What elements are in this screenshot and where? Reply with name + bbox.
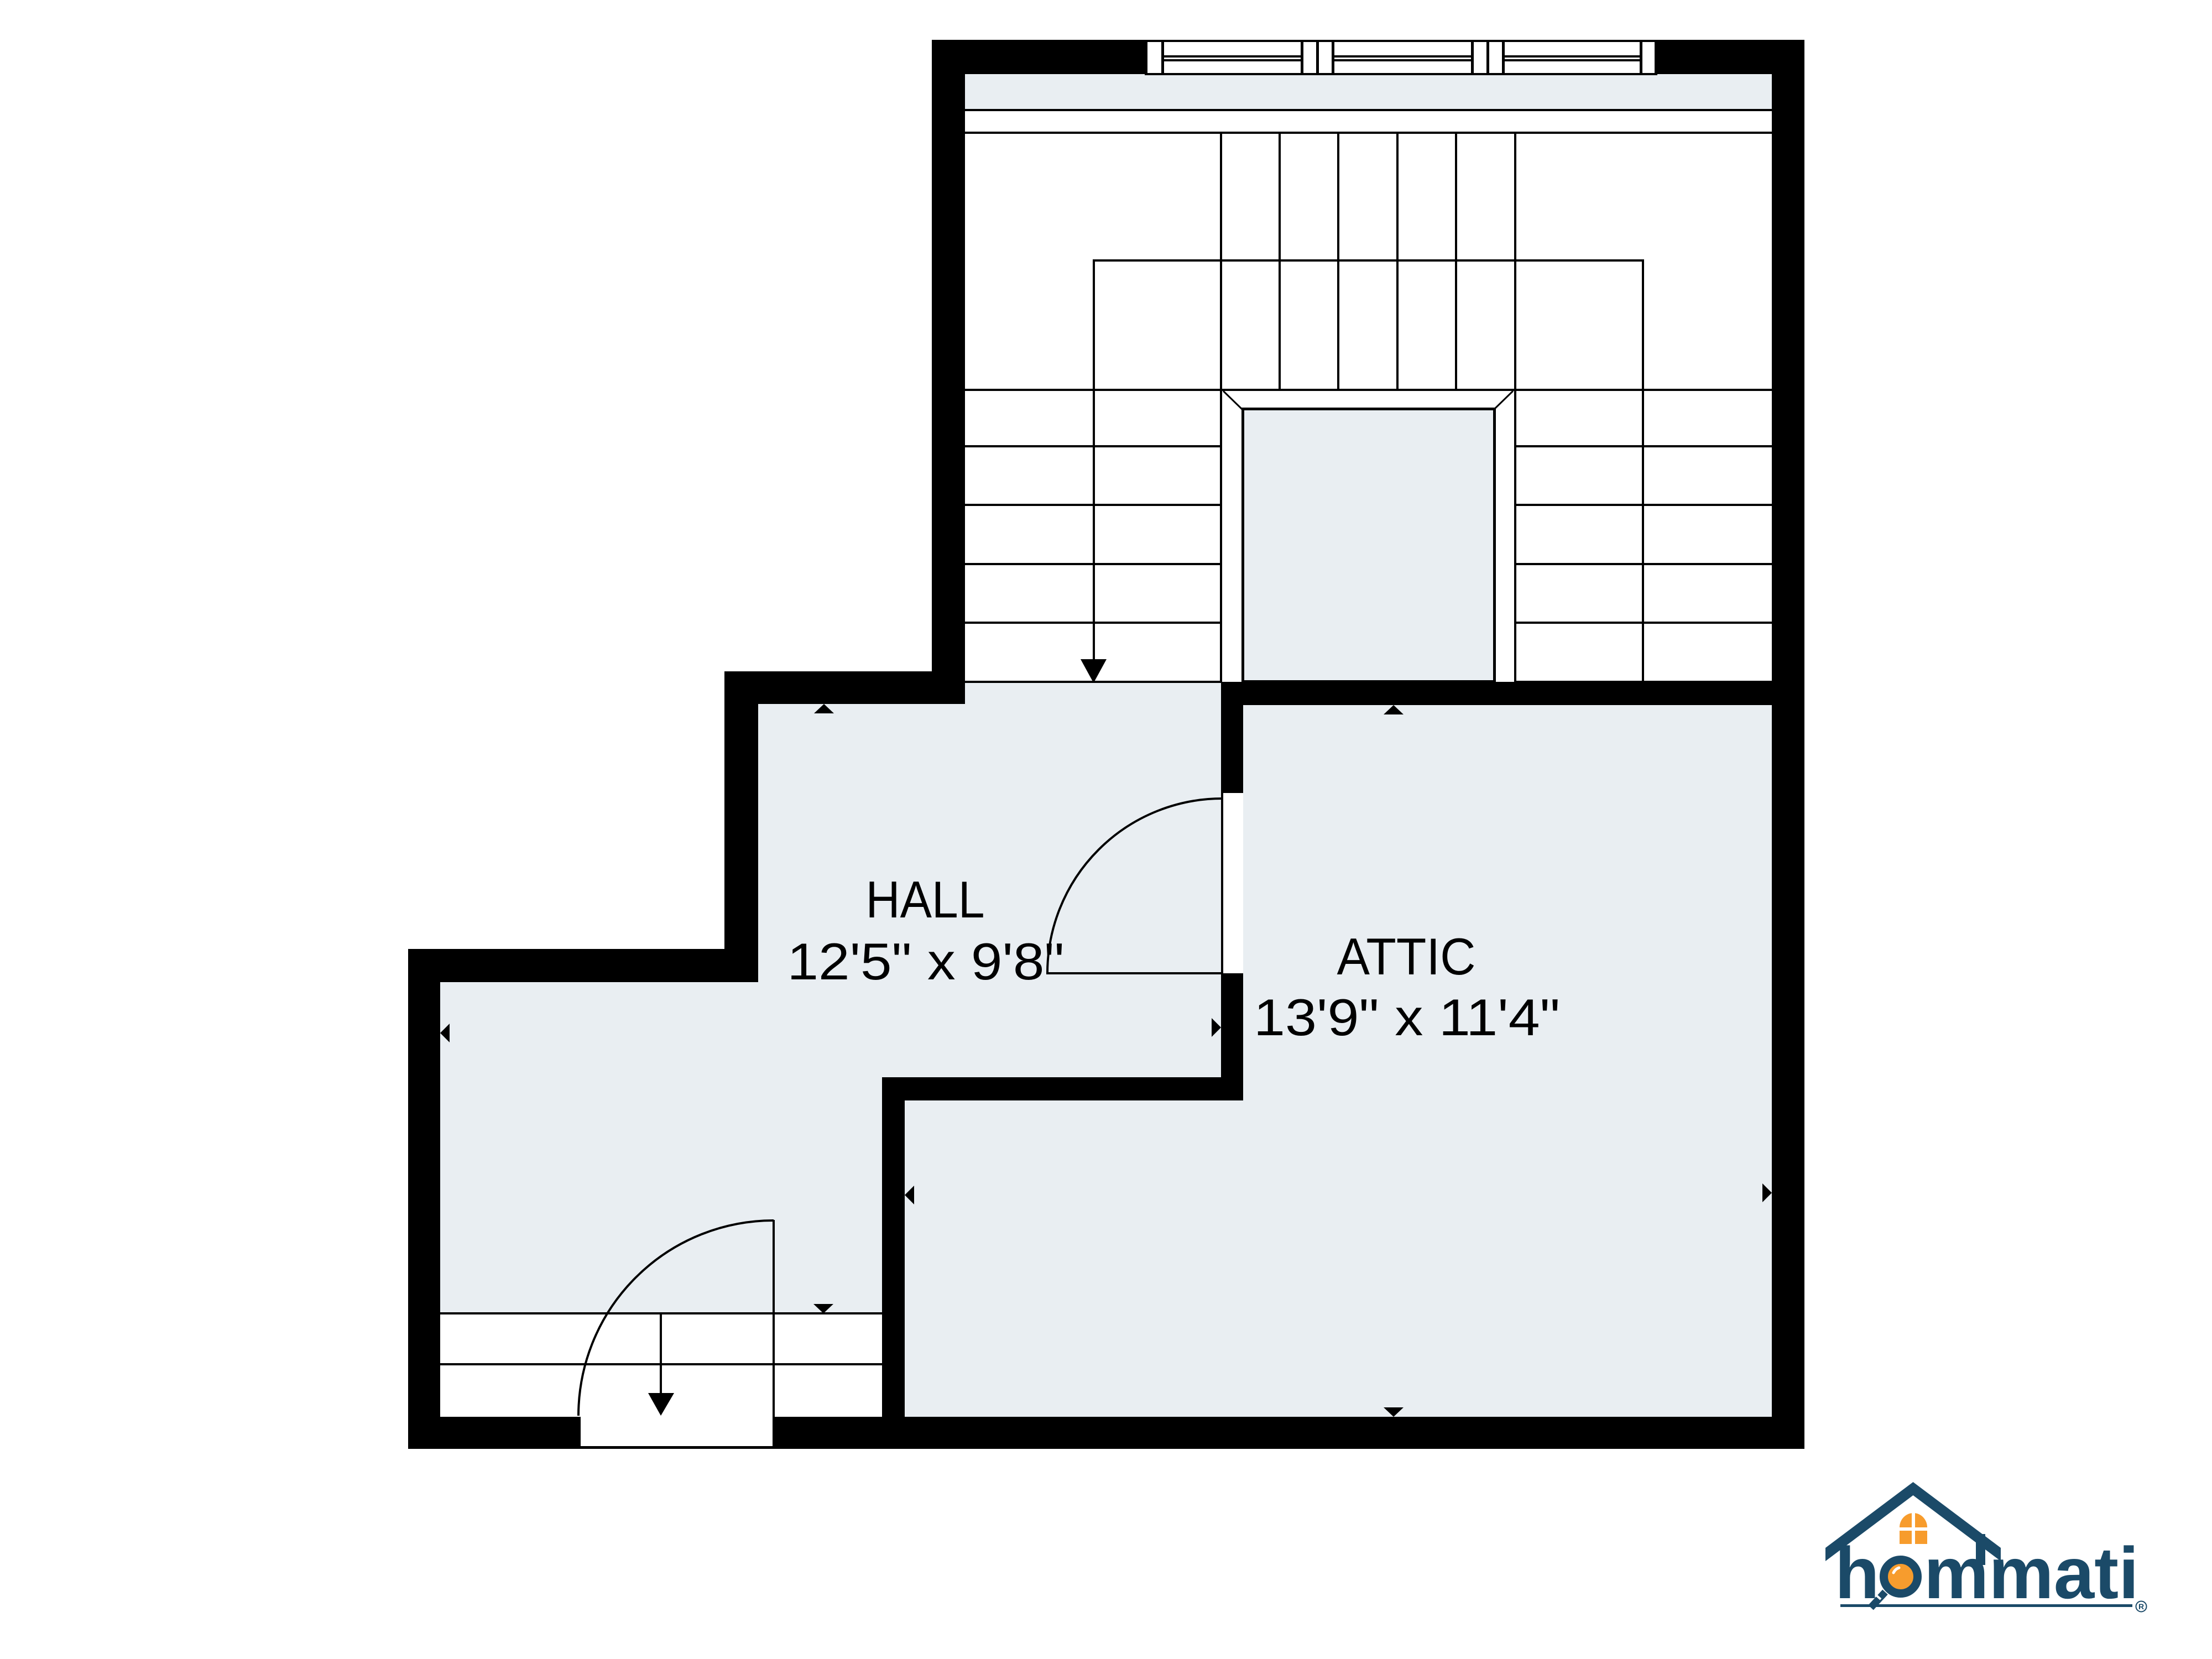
svg-text:ATTIC: ATTIC: [1337, 927, 1476, 985]
svg-text:mmati: mmati: [1924, 1532, 2139, 1614]
svg-text:13'9" x 11'4": 13'9" x 11'4": [1254, 988, 1560, 1046]
svg-text:12'5" x 9'8": 12'5" x 9'8": [787, 932, 1065, 990]
svg-text:HALL: HALL: [866, 870, 985, 928]
svg-text:R: R: [2138, 1602, 2144, 1611]
